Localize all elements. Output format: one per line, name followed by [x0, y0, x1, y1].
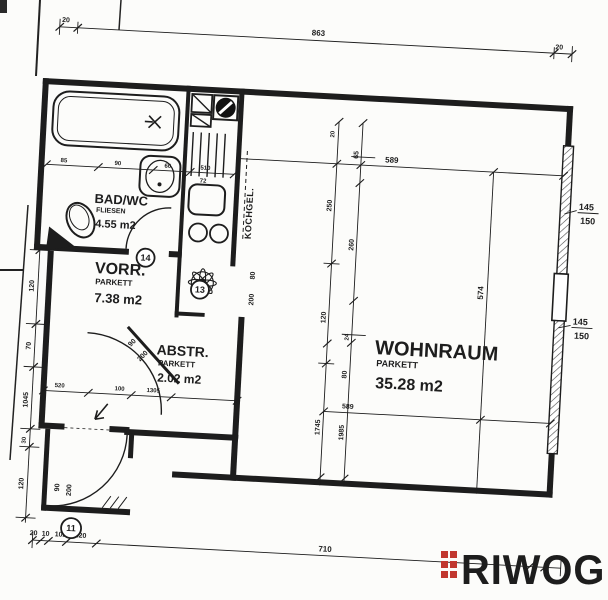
washbasin — [139, 155, 181, 197]
window-1 — [557, 146, 574, 274]
floorplan-page: 20 863 20 120 70 1045 30 120 90 200 85 9… — [0, 0, 608, 600]
dim-bottom-20: 20 — [30, 530, 38, 537]
burner-1 — [189, 223, 208, 242]
room-vorraum-area: 7.38 m2 — [94, 290, 142, 308]
window-2 — [547, 321, 564, 454]
dim-b-24: 24 — [344, 333, 350, 341]
dim-inner-100: 100 — [114, 386, 125, 393]
scan-corner-mark — [0, 0, 7, 13]
marker-13-label: 13 — [195, 284, 206, 295]
dim-left-1045: 1045 — [22, 392, 30, 408]
dim-entrance-door-90: 90 — [54, 483, 61, 491]
dim-bath-60: 60 — [164, 164, 172, 170]
dim-left-70: 70 — [26, 342, 33, 350]
dim-entrance-door-200: 200 — [66, 484, 74, 496]
dim-wohn-width-bottom: 589 — [342, 403, 354, 411]
dim-top-left: 20 — [62, 17, 70, 24]
room-abstell-area: 2.02 m2 — [157, 371, 202, 387]
dim-bath-85: 85 — [60, 158, 68, 164]
bathtub — [51, 91, 180, 152]
entrance-arrow — [95, 403, 108, 420]
entrance-door-arc — [48, 431, 127, 510]
dim-wohn-width-top: 589 — [385, 155, 399, 165]
room-wohnraum-floor: PARKETT — [376, 358, 419, 370]
threshold-hatch — [102, 496, 127, 509]
tap-icon — [145, 115, 162, 128]
dim-bath-510: 510 — [200, 166, 211, 173]
dim-top-width: 863 — [312, 28, 326, 38]
dim-b-65: 65 — [353, 151, 360, 159]
washbasin-drain — [157, 182, 161, 186]
dim-b-1985: 1985 — [338, 425, 346, 441]
dim-bath-90: 90 — [114, 161, 122, 167]
dim-kitchen-72: 72 — [200, 178, 208, 184]
room-bad-area: 4.55 m2 — [95, 218, 136, 232]
dim-door13-80: 80 — [250, 271, 257, 279]
dim-a-120: 120 — [320, 311, 328, 323]
dim-entrance-120: 120 — [18, 477, 26, 489]
dim-window1-width: 145 — [579, 202, 595, 213]
dim-top-right: 20 — [555, 44, 563, 51]
windows — [545, 146, 575, 454]
dim-b-80: 80 — [341, 370, 348, 378]
room-abstell-name: ABSTR. — [156, 341, 209, 360]
room-wohnraum-area: 35.28 m2 — [375, 375, 444, 396]
riwog-logo-text: RIWOG — [461, 546, 605, 593]
floorplan-drawing: 20 863 20 120 70 1045 30 120 90 200 85 9… — [0, 0, 608, 600]
riwog-logo-mark — [441, 551, 457, 578]
marker-11-label: 11 — [66, 523, 76, 533]
kitchen-sink — [188, 184, 226, 216]
dim-bottom-710: 710 — [318, 544, 332, 554]
plan-group: 20 863 20 120 70 1045 30 120 90 200 85 9… — [14, 14, 608, 577]
riwog-logo: RIWOG — [441, 546, 605, 593]
dim-b-260: 260 — [348, 239, 356, 251]
dim-bottom-10: 10 — [42, 531, 50, 538]
dim-left-30: 30 — [22, 436, 28, 444]
dim-a-1745: 1745 — [314, 419, 322, 435]
bath-fixtures — [46, 91, 184, 258]
dim-inner-520: 520 — [54, 383, 65, 390]
dim-door13-200: 200 — [248, 293, 256, 305]
dim-vorr-door-200: 200 — [137, 350, 150, 363]
dim-left-120: 120 — [29, 280, 37, 292]
marker-14-label: 14 — [140, 252, 151, 263]
dim-a-250: 250 — [326, 199, 334, 211]
dim-window2-width: 145 — [573, 317, 589, 328]
dim-inner-1305: 1305 — [146, 388, 160, 395]
dim-window2-parapet: 150 — [574, 331, 590, 342]
window-pillar — [552, 273, 568, 321]
room-kochnische-name: KOCHGEL. — [243, 187, 256, 239]
dim-a-20: 20 — [330, 130, 336, 138]
room-vorraum-floor: PARKETT — [95, 277, 133, 288]
dim-wohn-height: 574 — [476, 285, 486, 299]
room-bad-name: BAD/WC — [94, 191, 149, 209]
burner-2 — [210, 224, 229, 243]
vorraum-door-arc — [83, 333, 165, 415]
dim-window1-parapet: 150 — [580, 216, 596, 227]
room-bad-floor: FLIESEN — [96, 207, 126, 216]
